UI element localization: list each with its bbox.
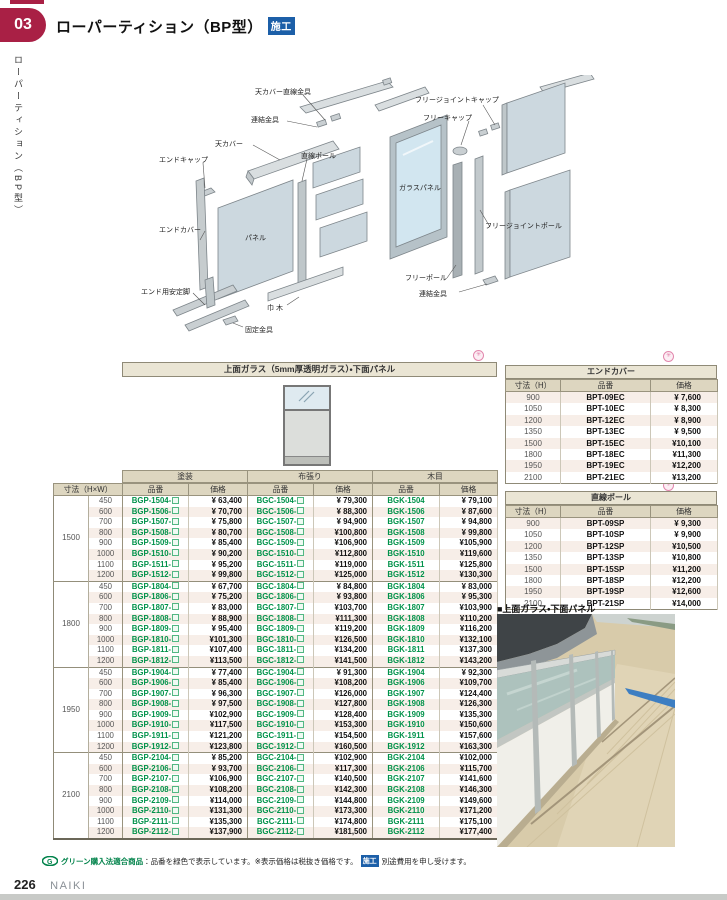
product-code: BGP-2106-: [132, 764, 171, 773]
paint-price-cell: ¥ 90,200: [189, 549, 248, 560]
diagram-label-straight-pole: 直線ポール: [301, 151, 336, 161]
woodgrain-price-cell: ¥ 87,600: [440, 507, 498, 518]
width-size-cell: 700: [89, 603, 123, 614]
cloth-code-cell: BGC-2108-: [248, 785, 314, 796]
price-cell: ¥14,000: [651, 598, 718, 610]
color-spec-box: [172, 528, 179, 535]
paint-price-cell: ¥135,300: [189, 817, 248, 828]
woodgrain-price-cell: ¥102,000: [440, 753, 498, 764]
paint-code-cell: BGP-1811-: [123, 645, 189, 656]
price-row: 2100450BGP-2104-¥ 85,200BGC-2104-¥102,90…: [54, 753, 498, 764]
product-code: BGP-1510-: [132, 549, 171, 558]
cloth-code-cell: BGC-1911-: [248, 731, 314, 742]
product-code: BGP-1907-: [132, 689, 171, 698]
cloth-code-cell: BGC-1912-: [248, 742, 314, 753]
width-size-cell: 800: [89, 785, 123, 796]
cloth-price-cell: ¥111,300: [314, 614, 373, 625]
product-code: BGP-1908-: [132, 699, 171, 708]
product-code: BGP-2104-: [132, 753, 171, 762]
price-row: 800BGP-1908-¥ 97,500BGC-1908-¥127,800BGK…: [54, 699, 498, 710]
price-row: 600BGP-1806-¥ 75,200BGC-1806-¥ 93,800BGK…: [54, 592, 498, 603]
panel-figure-glass: [285, 387, 329, 411]
paint-code-cell: BGP-2108-: [123, 785, 189, 796]
product-photo: [497, 614, 675, 847]
size-cell: 1800: [506, 449, 561, 460]
product-code: BGC-2106-: [257, 764, 297, 773]
paint-price-cell: ¥ 95,400: [189, 624, 248, 635]
brand-logo: NAIKI: [50, 880, 86, 892]
paint-price-cell: ¥ 96,300: [189, 689, 248, 700]
woodgrain-code-cell: BGK-1811: [373, 645, 440, 656]
color-spec-box: [172, 646, 179, 653]
price-row: 700BGP-1507-¥ 75,800BGC-1507-¥ 94,900BGK…: [54, 517, 498, 528]
subheader-code: 品番: [123, 484, 189, 496]
price-row: 800BGP-2108-¥108,200BGC-2108-¥142,300BGK…: [54, 785, 498, 796]
paint-price-cell: ¥ 70,700: [189, 507, 248, 518]
product-code: BGC-1812-: [257, 656, 297, 665]
paint-code-cell: BGP-2106-: [123, 764, 189, 775]
paint-code-cell: BGP-1509-: [123, 538, 189, 549]
straight-pole-table-title: 直線ポール: [505, 491, 717, 505]
paint-code-cell: BGP-1808-: [123, 614, 189, 625]
product-code: BGC-2112-: [257, 827, 296, 836]
cloth-price-cell: ¥ 94,900: [314, 517, 373, 528]
height-group-label: 1500: [54, 496, 89, 582]
color-spec-box: [172, 593, 179, 600]
product-code: BGP-2112-: [132, 827, 171, 836]
product-code: BGC-1504-: [257, 496, 297, 505]
price-row: 1000BGP-1510-¥ 90,200BGC-1510-¥112,800BG…: [54, 549, 498, 560]
price-row: 900BGP-1909-¥102,900BGC-1909-¥128,400BGK…: [54, 710, 498, 721]
side-header-size: 寸法（H）: [506, 380, 561, 392]
accessory-row: 1800BPT-18EC¥11,300: [506, 449, 718, 460]
color-spec-box: [297, 560, 304, 567]
cloth-price-cell: ¥108,200: [314, 678, 373, 689]
cloth-price-cell: ¥103,700: [314, 603, 373, 614]
woodgrain-price-cell: ¥141,600: [440, 774, 498, 785]
height-group-label: 2100: [54, 753, 89, 839]
woodgrain-price-cell: ¥149,600: [440, 796, 498, 807]
product-code: BGK-1506: [387, 507, 424, 516]
width-size-cell: 1000: [89, 720, 123, 731]
col-group-cloth: 布張り: [248, 471, 373, 483]
product-code: BGK-1806: [387, 592, 424, 601]
woodgrain-price-cell: ¥150,600: [440, 720, 498, 731]
product-code: BGC-1904-: [257, 668, 297, 677]
width-size-cell: 1100: [89, 645, 123, 656]
price-cell: ¥10,800: [651, 552, 718, 563]
code-cell: BPT-15SP: [561, 564, 651, 575]
woodgrain-price-cell: ¥109,700: [440, 678, 498, 689]
price-cell: ¥ 8,900: [651, 415, 718, 426]
price-row: 1800450BGP-1804-¥ 67,700BGC-1804-¥ 84,80…: [54, 581, 498, 592]
paint-price-cell: ¥ 99,800: [189, 570, 248, 581]
product-code: BGC-1512-: [257, 570, 297, 579]
cloth-price-cell: ¥134,200: [314, 645, 373, 656]
cloth-price-cell: ¥140,500: [314, 774, 373, 785]
made-to-order-icon: ✳: [663, 351, 674, 362]
main-price-table: 上面ガラス（5mm厚透明ガラス）・下面パネル 塗装 布張り 木目: [53, 362, 497, 840]
product-code: BGK-2108: [387, 785, 424, 794]
price-row: 1000BGP-2110-¥131,300BGC-2110-¥173,300BG…: [54, 806, 498, 817]
paint-price-cell: ¥ 67,700: [189, 581, 248, 592]
price-cell: ¥11,200: [651, 564, 718, 575]
cloth-code-cell: BGC-2110-: [248, 806, 314, 817]
width-size-cell: 700: [89, 517, 123, 528]
paint-price-cell: ¥ 83,000: [189, 603, 248, 614]
cloth-price-cell: ¥126,500: [314, 635, 373, 646]
paint-price-cell: ¥ 93,700: [189, 764, 248, 775]
color-spec-box: [297, 539, 304, 546]
paint-price-cell: ¥108,200: [189, 785, 248, 796]
paint-price-cell: ¥102,900: [189, 710, 248, 721]
paint-code-cell: BGP-1810-: [123, 635, 189, 646]
product-code: BGK-1810: [387, 635, 424, 644]
color-spec-box: [172, 582, 179, 589]
size-cell: 1050: [506, 403, 561, 414]
woodgrain-price-cell: ¥ 79,100: [440, 496, 498, 507]
color-spec-box: [297, 593, 304, 600]
price-row: 1000BGP-1910-¥117,500BGC-1910-¥153,300BG…: [54, 720, 498, 731]
size-cell: 1200: [506, 415, 561, 426]
cloth-code-cell: BGC-1910-: [248, 720, 314, 731]
diagram-label-free-joint-pole: フリージョイントポール: [485, 221, 562, 231]
product-code: BGP-1810-: [132, 635, 171, 644]
cloth-code-cell: BGC-2109-: [248, 796, 314, 807]
catalog-page: 03 ローパーティション（BP型）施工 ローパーティション（BP型）: [0, 0, 727, 900]
color-spec-box: [172, 721, 179, 728]
paint-code-cell: BGP-1906-: [123, 678, 189, 689]
color-spec-box: [172, 603, 179, 610]
diagram-label-free-joint-cap: フリージョイントキャップ: [415, 95, 499, 105]
code-cell: BPT-15EC: [561, 438, 651, 449]
cloth-price-cell: ¥153,300: [314, 720, 373, 731]
product-code: BGK-1911: [388, 731, 425, 740]
panel-figure-area: [53, 377, 497, 470]
chapter-number-tab: 03: [0, 8, 46, 42]
price-cell: ¥10,100: [651, 438, 718, 449]
cloth-price-cell: ¥119,200: [314, 624, 373, 635]
price-cell: ¥ 9,500: [651, 426, 718, 437]
woodgrain-code-cell: BGK-1504: [373, 496, 440, 507]
paint-price-cell: ¥ 80,700: [189, 528, 248, 539]
paint-price-cell: ¥107,400: [189, 645, 248, 656]
width-size-cell: 600: [89, 592, 123, 603]
cloth-code-cell: BGC-1809-: [248, 624, 314, 635]
product-code: BGP-2109-: [132, 796, 171, 805]
diagram-label-glass-panel: ガラスパネル: [399, 183, 441, 193]
cloth-code-cell: BGC-2106-: [248, 764, 314, 775]
paint-price-cell: ¥101,300: [189, 635, 248, 646]
product-code: BGC-1809-: [257, 624, 297, 633]
product-code: BGK-1904: [387, 668, 424, 677]
price-cell: ¥ 7,600: [651, 392, 718, 404]
product-code: BGK-1512: [387, 570, 424, 579]
diagram-label-free-pole: フリーポール: [405, 273, 447, 283]
size-cell: 1950: [506, 460, 561, 471]
code-cell: BPT-10EC: [561, 403, 651, 414]
diagram-label-top-cover-straight-fitting: 天カバー直線金具: [255, 87, 311, 97]
svg-text:G: G: [47, 859, 53, 866]
side-header-size: 寸法（H）: [506, 506, 561, 518]
paint-price-cell: ¥ 95,200: [189, 560, 248, 571]
price-row: 1200BGP-2112-¥137,900BGC-2112-¥181,500BG…: [54, 827, 498, 839]
size-cell: 900: [506, 518, 561, 530]
product-code: BGC-1908-: [257, 699, 297, 708]
paint-price-cell: ¥ 85,400: [189, 538, 248, 549]
product-code: BGC-1910-: [257, 720, 297, 729]
woodgrain-code-cell: BGK-1507: [373, 517, 440, 528]
sidebar-vertical-label: ローパーティション（BP型）: [12, 55, 25, 217]
cloth-code-cell: BGC-1504-: [248, 496, 314, 507]
product-code: BGC-1906-: [257, 678, 297, 687]
page-edge-red-strip: [10, 0, 44, 4]
woodgrain-code-cell: BGK-1912: [373, 742, 440, 753]
woodgrain-price-cell: ¥ 95,300: [440, 592, 498, 603]
accessory-row: 1350BPT-13EC¥ 9,500: [506, 426, 718, 437]
side-header-code: 品番: [561, 380, 651, 392]
product-code: BGP-1507-: [132, 517, 171, 526]
cloth-price-cell: ¥106,900: [314, 538, 373, 549]
width-size-cell: 800: [89, 614, 123, 625]
bottom-bar: [0, 894, 727, 900]
end-cover-table: エンドカバー 寸法（H） 品番 価格 900BPT-09EC¥ 7,600105…: [505, 365, 717, 484]
cloth-code-cell: BGC-1508-: [248, 528, 314, 539]
product-code: BGK-1804: [387, 582, 424, 591]
product-code: BGP-1904-: [132, 668, 171, 677]
paint-code-cell: BGP-1508-: [123, 528, 189, 539]
subheader-price: 価格: [189, 484, 248, 496]
paint-code-cell: BGP-1904-: [123, 667, 189, 678]
page-title-text: ローパーティション（BP型）: [56, 19, 263, 36]
woodgrain-code-cell: BGK-1906: [373, 678, 440, 689]
cloth-code-cell: BGC-1904-: [248, 667, 314, 678]
color-spec-box: [172, 668, 179, 675]
paint-price-cell: ¥121,200: [189, 731, 248, 742]
product-code: BGC-1804-: [257, 582, 297, 591]
width-size-cell: 450: [89, 581, 123, 592]
cloth-code-cell: BGC-1906-: [248, 678, 314, 689]
product-code: BGP-1809-: [132, 624, 171, 633]
product-code: BGK-2107: [387, 774, 424, 783]
material-group-header: 塗装 布張り 木目: [122, 470, 498, 483]
woodgrain-code-cell: BGK-1808: [373, 614, 440, 625]
cloth-code-cell: BGC-1812-: [248, 656, 314, 667]
color-spec-box: [297, 656, 304, 663]
color-spec-box: [297, 754, 304, 761]
price-row: 600BGP-1506-¥ 70,700BGC-1506-¥ 88,300BGK…: [54, 507, 498, 518]
price-row: 800BGP-1508-¥ 80,700BGC-1508-¥100,800BGK…: [54, 528, 498, 539]
color-spec-box: [172, 732, 179, 739]
price-cell: ¥12,200: [651, 575, 718, 586]
color-spec-box: [172, 656, 179, 663]
cloth-price-cell: ¥ 79,300: [314, 496, 373, 507]
woodgrain-code-cell: BGK-2109: [373, 796, 440, 807]
color-spec-box: [297, 625, 304, 632]
paint-code-cell: BGP-1807-: [123, 603, 189, 614]
diagram-label-connector-fitting-right: 連結金具: [419, 289, 447, 299]
accessory-row: 1950BPT-19EC¥12,200: [506, 460, 718, 471]
straight-pole-table: 直線ポール 寸法（H） 品番 価格 900BPT-09SP¥ 9,3001050…: [505, 491, 717, 610]
width-size-cell: 450: [89, 753, 123, 764]
side-header-price: 価格: [651, 380, 718, 392]
size-cell: 1350: [506, 426, 561, 437]
woodgrain-code-cell: BGK-1810: [373, 635, 440, 646]
exploded-parts-diagram: 天カバー直線金具 連結金具 天カバー エンドキャップ 直線ポール エンドカバー …: [55, 75, 720, 360]
woodgrain-code-cell: BGK-2111: [373, 817, 440, 828]
paint-code-cell: BGP-1507-: [123, 517, 189, 528]
width-size-cell: 1100: [89, 817, 123, 828]
price-cell: ¥ 9,900: [651, 529, 718, 540]
product-code: BGK-1510: [387, 549, 424, 558]
product-code: BGK-2109: [387, 796, 424, 805]
woodgrain-price-cell: ¥163,300: [440, 742, 498, 753]
color-spec-box: [297, 828, 304, 835]
product-code: BGP-2111-: [132, 817, 171, 826]
price-row: 900BGP-1509-¥ 85,400BGC-1509-¥106,900BGK…: [54, 538, 498, 549]
woodgrain-price-cell: ¥146,300: [440, 785, 498, 796]
product-code: BGK-1808: [387, 614, 424, 623]
cloth-price-cell: ¥102,900: [314, 753, 373, 764]
product-code: BGP-1511-: [132, 560, 171, 569]
color-spec-box: [172, 754, 179, 761]
product-code: BGK-2106: [387, 764, 424, 773]
cloth-price-cell: ¥100,800: [314, 528, 373, 539]
color-spec-box: [297, 603, 304, 610]
color-spec-box: [297, 807, 304, 814]
side-header-price: 価格: [651, 506, 718, 518]
woodgrain-code-cell: BGK-1510: [373, 549, 440, 560]
cloth-code-cell: BGC-1907-: [248, 689, 314, 700]
cloth-price-cell: ¥ 91,300: [314, 667, 373, 678]
color-spec-box: [172, 710, 179, 717]
product-code: BGK-1908: [387, 699, 424, 708]
color-spec-box: [172, 764, 179, 771]
price-row: 600BGP-1906-¥ 85,400BGC-1906-¥108,200BGK…: [54, 678, 498, 689]
cloth-price-cell: ¥142,300: [314, 785, 373, 796]
paint-code-cell: BGP-1809-: [123, 624, 189, 635]
paint-price-cell: ¥ 63,400: [189, 496, 248, 507]
size-cell: 1050: [506, 529, 561, 540]
woodgrain-code-cell: BGK-2112: [373, 827, 440, 839]
size-header: 寸法（H×W）: [54, 484, 123, 496]
woodgrain-price-cell: ¥175,100: [440, 817, 498, 828]
product-code: BGP-1806-: [132, 592, 171, 601]
color-spec-box: [172, 796, 179, 803]
width-size-cell: 1200: [89, 827, 123, 839]
paint-code-cell: BGP-1911-: [123, 731, 189, 742]
price-row: 800BGP-1808-¥ 88,900BGC-1808-¥111,300BGK…: [54, 614, 498, 625]
cloth-code-cell: BGC-1810-: [248, 635, 314, 646]
product-code: BGK-1811: [388, 645, 425, 654]
paint-price-cell: ¥131,300: [189, 806, 248, 817]
color-spec-box: [297, 786, 304, 793]
price-row: 1100BGP-2111-¥135,300BGC-2111-¥174,800BG…: [54, 817, 498, 828]
made-to-order-icon: ✳: [473, 350, 484, 361]
paint-code-cell: BGP-2109-: [123, 796, 189, 807]
color-spec-box: [172, 571, 179, 578]
product-code: BGP-1812-: [132, 656, 171, 665]
paint-price-cell: ¥123,800: [189, 742, 248, 753]
paint-price-cell: ¥ 75,200: [189, 592, 248, 603]
accessory-row: 900BPT-09EC¥ 7,600: [506, 392, 718, 404]
color-spec-box: [172, 614, 179, 621]
paint-code-cell: BGP-1910-: [123, 720, 189, 731]
color-spec-box: [172, 625, 179, 632]
page-footer: 226 NAIKI: [14, 876, 86, 894]
cloth-price-cell: ¥144,800: [314, 796, 373, 807]
size-cell: 1200: [506, 541, 561, 552]
product-code: BGP-1512-: [132, 570, 171, 579]
width-size-cell: 900: [89, 796, 123, 807]
product-code: BGC-2110-: [257, 806, 296, 815]
paint-code-cell: BGP-1512-: [123, 570, 189, 581]
woodgrain-price-cell: ¥132,100: [440, 635, 498, 646]
size-cell: 900: [506, 392, 561, 404]
product-code: BGP-1911-: [132, 731, 171, 740]
color-spec-box: [297, 497, 304, 504]
price-cell: ¥11,300: [651, 449, 718, 460]
price-row: 700BGP-2107-¥106,900BGC-2107-¥140,500BGK…: [54, 774, 498, 785]
color-spec-box: [297, 700, 304, 707]
cloth-code-cell: BGC-1512-: [248, 570, 314, 581]
color-spec-box: [297, 614, 304, 621]
color-spec-box: [172, 560, 179, 567]
product-code: BGK-1907: [387, 689, 424, 698]
color-spec-box: [297, 721, 304, 728]
product-code: BGP-2110-: [132, 806, 171, 815]
width-size-cell: 450: [89, 496, 123, 507]
width-size-cell: 1200: [89, 656, 123, 667]
cloth-code-cell: BGC-1510-: [248, 549, 314, 560]
green-purchase-logo-icon: G: [42, 856, 58, 866]
product-code: BGP-1807-: [132, 603, 171, 612]
width-size-cell: 600: [89, 764, 123, 775]
product-code: BGK-1511: [388, 560, 425, 569]
code-cell: BPT-09SP: [561, 518, 651, 530]
woodgrain-code-cell: BGK-1910: [373, 720, 440, 731]
paint-price-cell: ¥ 85,400: [189, 678, 248, 689]
cloth-price-cell: ¥ 88,300: [314, 507, 373, 518]
product-code: BGK-1906: [387, 678, 424, 687]
code-cell: BPT-13EC: [561, 426, 651, 437]
product-code: BGK-1507: [387, 517, 424, 526]
product-code: BGP-1506-: [132, 507, 171, 516]
code-cell: BPT-18SP: [561, 575, 651, 586]
construction-badge-footer: 施工: [361, 855, 379, 867]
accessory-row: 1500BPT-15SP¥11,200: [506, 564, 718, 575]
paint-price-cell: ¥ 88,900: [189, 614, 248, 625]
price-cell: ¥ 8,300: [651, 403, 718, 414]
color-spec-box: [297, 764, 304, 771]
subheader-code: 品番: [248, 484, 314, 496]
height-group-label: 1800: [54, 581, 89, 667]
diagram-label-panel: パネル: [245, 233, 266, 243]
paint-code-cell: BGP-1908-: [123, 699, 189, 710]
end-cover-table-title: エンドカバー: [505, 365, 717, 379]
woodgrain-price-cell: ¥119,600: [440, 549, 498, 560]
paint-code-cell: BGP-1506-: [123, 507, 189, 518]
product-code: BGC-1511-: [257, 560, 296, 569]
cloth-code-cell: BGC-1804-: [248, 581, 314, 592]
product-code: BGC-1808-: [257, 614, 297, 623]
accessory-row: 1050BPT-10SP¥ 9,900: [506, 529, 718, 540]
cloth-price-cell: ¥117,300: [314, 764, 373, 775]
color-spec-box: [297, 679, 304, 686]
woodgrain-code-cell: BGK-1908: [373, 699, 440, 710]
color-spec-box: [172, 775, 179, 782]
width-size-cell: 800: [89, 699, 123, 710]
